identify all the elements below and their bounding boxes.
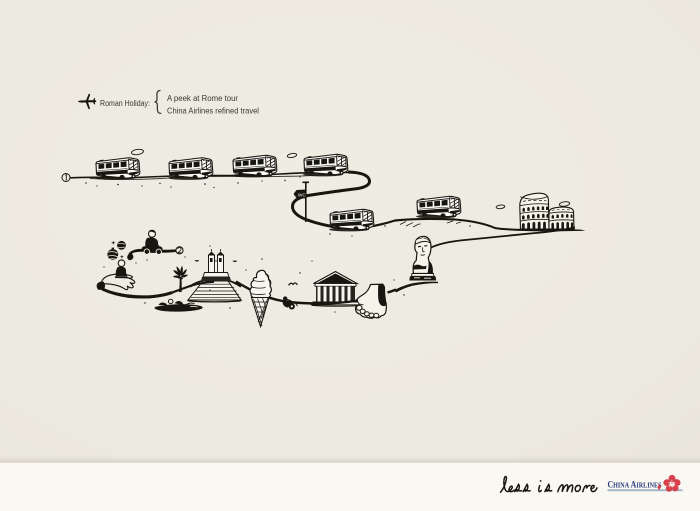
svg-text:A peek at Rome tour: A peek at Rome tour [167,93,238,103]
svg-text:Roman Holiday:: Roman Holiday: [100,98,150,108]
svg-text:China Airlines refined travel: China Airlines refined travel [167,106,259,116]
svg-text:WC: WC [298,193,306,198]
svg-text:CHINA AIRLINES: CHINA AIRLINES [608,479,662,489]
